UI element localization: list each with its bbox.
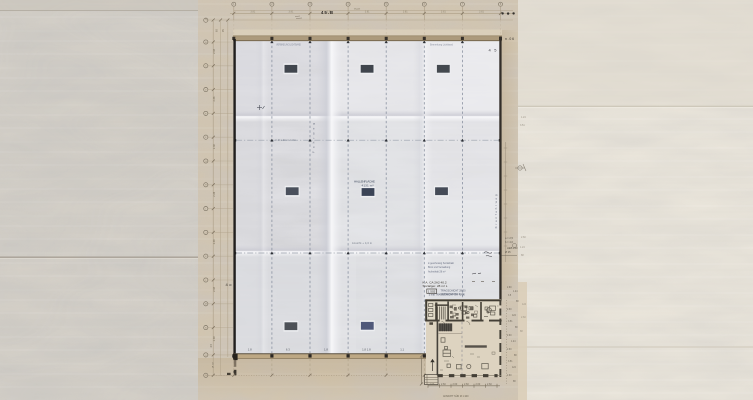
svg-text:4131 m²: 4131 m² bbox=[362, 184, 374, 188]
svg-text:2.60: 2.60 bbox=[507, 335, 512, 337]
svg-text:2-geschossig Sozialtrakt: 2-geschossig Sozialtrakt bbox=[428, 262, 454, 265]
svg-text:1.24: 1.24 bbox=[521, 116, 526, 119]
svg-text:Ø 25: Ø 25 bbox=[505, 250, 511, 254]
svg-text:4.5: 4.5 bbox=[210, 343, 213, 347]
svg-text:2.38: 2.38 bbox=[213, 286, 216, 291]
svg-text:n.06: n.06 bbox=[505, 37, 514, 41]
svg-text:2.60: 2.60 bbox=[521, 316, 526, 319]
svg-text:3.51: 3.51 bbox=[508, 321, 513, 323]
svg-text:Büro und Verwaltung: Büro und Verwaltung bbox=[428, 266, 451, 269]
svg-text:2.60: 2.60 bbox=[507, 309, 512, 311]
svg-text:J: J bbox=[205, 232, 206, 234]
svg-text:3.81: 3.81 bbox=[479, 11, 484, 14]
svg-text:124: 124 bbox=[522, 303, 527, 306]
svg-text:Sozialger. 28 m² L: Sozialger. 28 m² L bbox=[423, 284, 448, 288]
svg-text:Aufenthalt 28 m²: Aufenthalt 28 m² bbox=[428, 271, 446, 274]
svg-text:3.81: 3.81 bbox=[289, 11, 294, 14]
svg-text:HEB 240: HEB 240 bbox=[507, 246, 518, 250]
svg-text:4o: 4o bbox=[226, 282, 233, 287]
svg-text:1.8: 1.8 bbox=[324, 348, 328, 352]
svg-text:1.24: 1.24 bbox=[511, 341, 516, 343]
svg-text:a = 2,5: a = 2,5 bbox=[505, 236, 514, 240]
svg-text:2.60: 2.60 bbox=[430, 383, 435, 386]
svg-text:3.81: 3.81 bbox=[365, 11, 370, 14]
svg-text:2.60: 2.60 bbox=[476, 383, 481, 386]
svg-text:1.24: 1.24 bbox=[520, 246, 525, 249]
svg-text:Bemerkung Lichtband: Bemerkung Lichtband bbox=[430, 44, 454, 47]
svg-text:VERBINDUNG LICHTBAND: VERBINDUNG LICHTBAND bbox=[276, 43, 301, 46]
svg-text:2.60: 2.60 bbox=[507, 349, 512, 351]
svg-text:2.38: 2.38 bbox=[213, 239, 216, 244]
svg-text:2.60: 2.60 bbox=[464, 383, 469, 386]
svg-text:1.24: 1.24 bbox=[513, 291, 518, 293]
svg-text:6.3: 6.3 bbox=[286, 348, 290, 352]
svg-text:1.8 1.8: 1.8 1.8 bbox=[362, 348, 371, 352]
svg-text:75.87: 75.87 bbox=[354, 8, 361, 11]
svg-text:1.8: 1.8 bbox=[248, 348, 252, 352]
svg-text:Ansicht + 4,0 m: Ansicht + 4,0 m bbox=[352, 242, 372, 245]
svg-text:3.51: 3.51 bbox=[520, 124, 525, 127]
svg-text:2.38: 2.38 bbox=[213, 96, 216, 101]
svg-text:2.38: 2.38 bbox=[213, 48, 216, 53]
svg-text:K 30 x 30 cm 12 St: K 30 x 30 cm 12 St bbox=[276, 139, 296, 142]
svg-text:2.38: 2.38 bbox=[213, 191, 216, 196]
svg-text:2.38: 2.38 bbox=[213, 336, 216, 341]
svg-text:5 mal TRAGSCHICHT OK +0.00: 5 mal TRAGSCHICHT OK +0.00 bbox=[429, 293, 466, 296]
svg-text:2.60: 2.60 bbox=[507, 287, 512, 289]
svg-text:b = 4,0: b = 4,0 bbox=[505, 240, 514, 244]
svg-text:2.38: 2.38 bbox=[213, 144, 216, 149]
svg-text:2.60: 2.60 bbox=[441, 383, 446, 386]
svg-text:3.51: 3.51 bbox=[508, 361, 513, 363]
svg-text:3.81: 3.81 bbox=[441, 11, 446, 14]
svg-text:2.60: 2.60 bbox=[507, 375, 512, 377]
svg-text:2.60: 2.60 bbox=[521, 236, 526, 239]
svg-text:1.1: 1.1 bbox=[400, 348, 404, 352]
svg-text:2.60: 2.60 bbox=[487, 383, 492, 386]
svg-text:45.B: 45.B bbox=[321, 10, 333, 15]
svg-text:2.60: 2.60 bbox=[453, 383, 458, 386]
svg-text:3.81: 3.81 bbox=[250, 11, 255, 14]
svg-text:ANSICHT SÜD M 1:100: ANSICHT SÜD M 1:100 bbox=[443, 395, 469, 398]
svg-text:3.81: 3.81 bbox=[403, 11, 408, 14]
